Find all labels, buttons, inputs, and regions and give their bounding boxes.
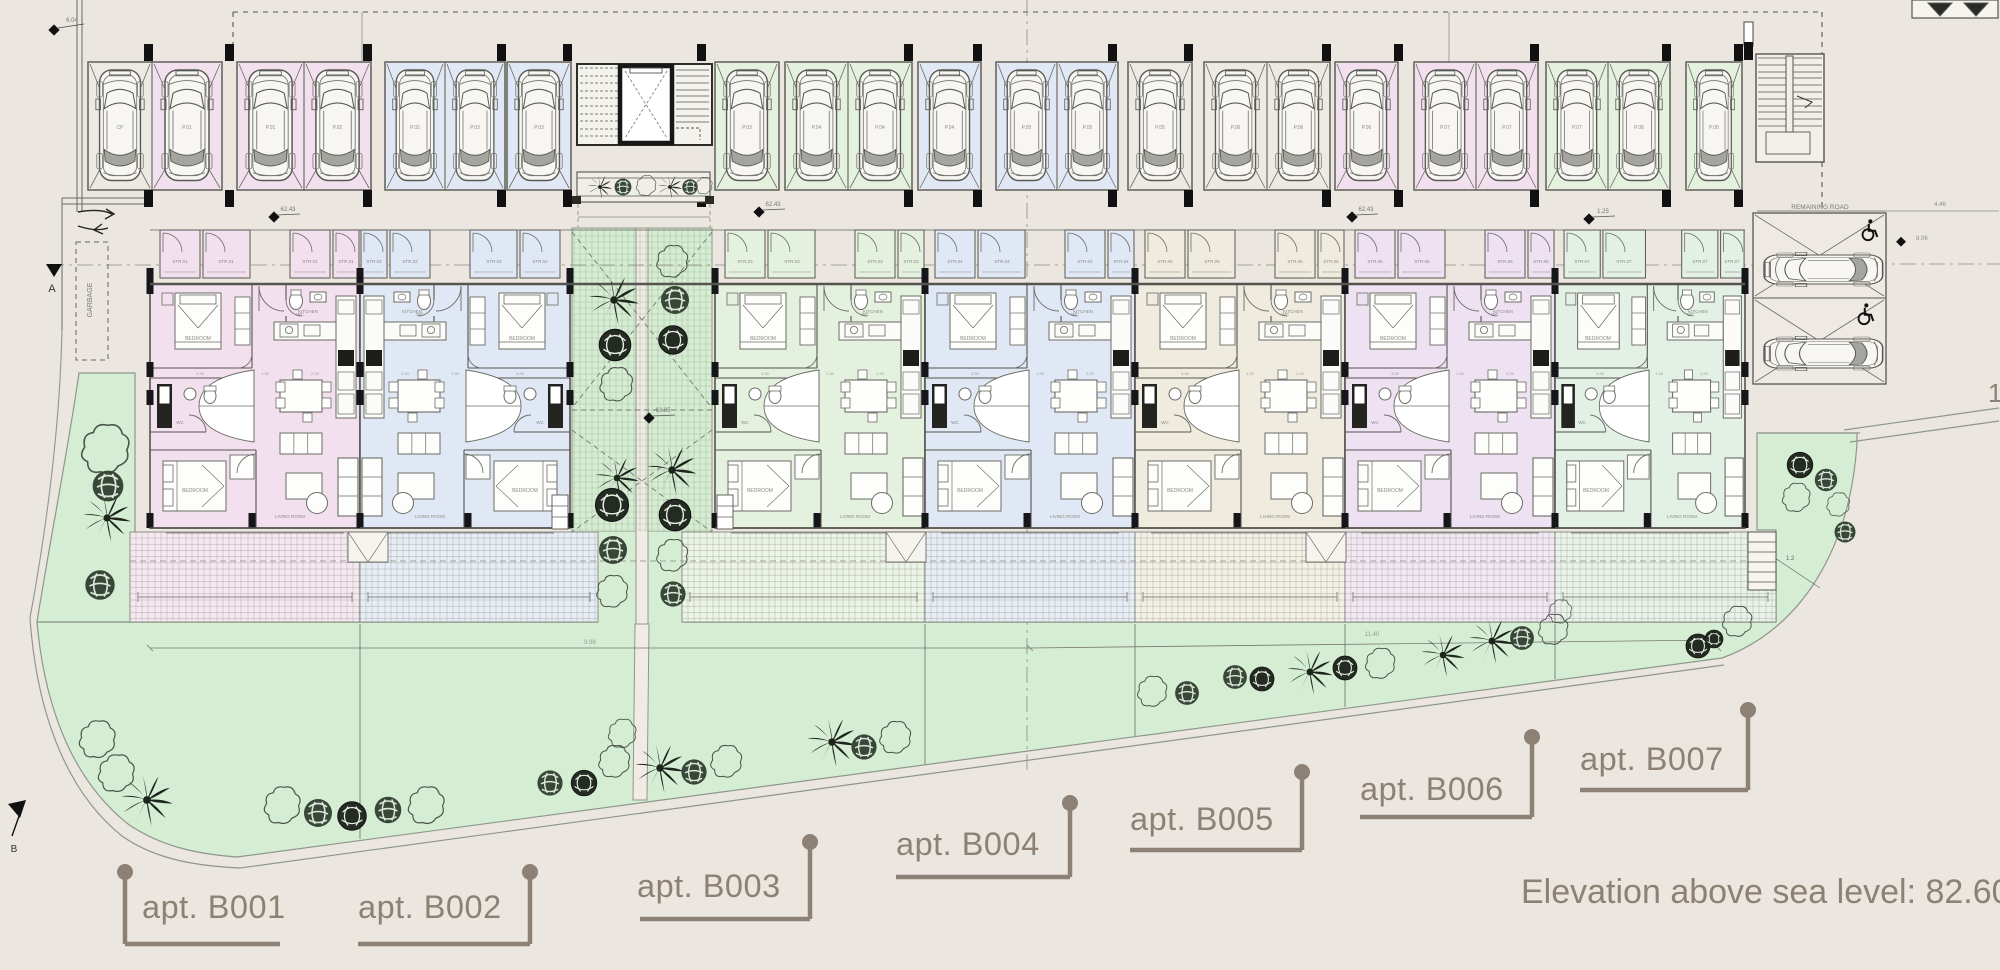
svg-text:KITCHEN: KITCHEN <box>1493 309 1513 314</box>
svg-text:KITCHEN: KITCHEN <box>1283 309 1303 314</box>
svg-text:LIVING ROOM: LIVING ROOM <box>840 514 870 519</box>
svg-text:P.06: P.06 <box>1231 125 1241 131</box>
svg-text:P.07: P.07 <box>1502 125 1512 131</box>
svg-text:STR.02: STR.02 <box>486 259 502 264</box>
svg-text:1.30: 1.30 <box>1655 371 1664 376</box>
svg-text:STR.05: STR.05 <box>1204 259 1220 264</box>
svg-text:STR.07: STR.07 <box>1616 259 1632 264</box>
svg-text:apt. B004: apt. B004 <box>896 826 1040 862</box>
svg-text:2.20: 2.20 <box>1086 371 1095 376</box>
svg-text:P.08: P.08 <box>1709 125 1719 131</box>
svg-text:WC: WC <box>1161 420 1169 425</box>
svg-text:STR.01: STR.01 <box>172 259 188 264</box>
svg-text:1.30: 1.30 <box>451 371 460 376</box>
svg-text:KITCHEN: KITCHEN <box>1688 309 1708 314</box>
svg-text:BEDROOM: BEDROOM <box>957 488 983 494</box>
svg-text:STR.04: STR.04 <box>1077 259 1093 264</box>
svg-text:STR.05: STR.05 <box>1323 259 1339 264</box>
svg-text:STR.06: STR.06 <box>1367 259 1383 264</box>
svg-text:P.07: P.07 <box>1440 125 1450 131</box>
svg-text:STR.03: STR.03 <box>867 259 883 264</box>
svg-text:1.30: 1.30 <box>261 371 270 376</box>
svg-text:BEDROOM: BEDROOM <box>512 488 538 494</box>
svg-text:REMAINING ROAD: REMAINING ROAD <box>1791 204 1849 211</box>
svg-text:STR.03: STR.03 <box>737 259 753 264</box>
svg-text:WC: WC <box>951 420 959 425</box>
svg-text:2.20: 2.20 <box>1506 371 1515 376</box>
svg-text:3.30: 3.30 <box>196 371 205 376</box>
svg-text:STR.07: STR.07 <box>1692 259 1708 264</box>
svg-text:LIVING ROOM: LIVING ROOM <box>1470 514 1500 519</box>
svg-text:WC: WC <box>176 420 184 425</box>
svg-text:62.43: 62.43 <box>765 202 781 208</box>
svg-text:P.05: P.05 <box>1022 125 1032 131</box>
svg-text:WC: WC <box>1371 420 1379 425</box>
svg-text:2.20: 2.20 <box>1700 371 1709 376</box>
svg-text:1.30: 1.30 <box>1456 371 1465 376</box>
svg-text:LIVING ROOM: LIVING ROOM <box>1260 514 1290 519</box>
svg-text:P.03: P.03 <box>470 125 480 131</box>
svg-text:2.20: 2.20 <box>1296 371 1305 376</box>
svg-text:P.05: P.05 <box>1083 125 1093 131</box>
svg-text:STR.05: STR.05 <box>1287 259 1303 264</box>
svg-text:Elevation above sea level: 82.: Elevation above sea level: 82.60 <box>1521 873 2000 911</box>
svg-text:P.02: P.02 <box>410 125 420 131</box>
svg-text:1.2: 1.2 <box>1786 556 1795 562</box>
svg-text:KITCHEN: KITCHEN <box>863 309 883 314</box>
svg-text:BEDROOM: BEDROOM <box>1167 488 1193 494</box>
svg-text:9.98: 9.98 <box>584 640 596 646</box>
svg-text:BEDROOM: BEDROOM <box>750 336 776 342</box>
svg-text:STR.02: STR.02 <box>402 259 418 264</box>
svg-text:KITCHEN: KITCHEN <box>298 309 318 314</box>
svg-text:KITCHEN: KITCHEN <box>402 309 422 314</box>
svg-text:P.04: P.04 <box>812 125 822 131</box>
svg-text:STR.04: STR.04 <box>994 259 1010 264</box>
svg-text:P.07: P.07 <box>1572 125 1582 131</box>
svg-text:STR.06: STR.06 <box>1414 259 1430 264</box>
svg-text:apt. B003: apt. B003 <box>637 868 781 904</box>
svg-text:1.25: 1.25 <box>1597 209 1609 215</box>
svg-text:LIVING ROOM: LIVING ROOM <box>275 514 305 519</box>
svg-text:P.04: P.04 <box>875 125 885 131</box>
svg-text:STR.02: STR.02 <box>366 259 382 264</box>
svg-text:3.30: 3.30 <box>761 371 770 376</box>
svg-text:P.04: P.04 <box>945 125 955 131</box>
svg-text:P.02: P.02 <box>333 125 343 131</box>
svg-text:1.30: 1.30 <box>1036 371 1045 376</box>
svg-text:WC: WC <box>741 420 749 425</box>
svg-text:BEDROOM: BEDROOM <box>747 488 773 494</box>
svg-text:STR.01: STR.01 <box>302 259 318 264</box>
svg-text:STR.04: STR.04 <box>1113 259 1129 264</box>
svg-text:STR.05: STR.05 <box>1157 259 1173 264</box>
svg-text:apt. B005: apt. B005 <box>1130 801 1274 837</box>
svg-text:2.20: 2.20 <box>876 371 885 376</box>
svg-text:2.20: 2.20 <box>401 371 410 376</box>
svg-text:CP: CP <box>117 125 125 131</box>
svg-text:STR.07: STR.07 <box>1574 259 1590 264</box>
svg-text:P.03: P.03 <box>534 125 544 131</box>
svg-text:LIVING ROOM: LIVING ROOM <box>415 514 445 519</box>
svg-text:3.30: 3.30 <box>971 371 980 376</box>
svg-text:62.43: 62.43 <box>1358 207 1374 213</box>
svg-text:WC: WC <box>1578 420 1586 425</box>
svg-text:STR.04: STR.04 <box>947 259 963 264</box>
svg-text:3.30: 3.30 <box>1391 371 1400 376</box>
svg-text:P.03: P.03 <box>742 125 752 131</box>
svg-text:3.30: 3.30 <box>516 371 525 376</box>
svg-text:63.05: 63.05 <box>655 408 671 414</box>
svg-text:STR.03: STR.03 <box>784 259 800 264</box>
svg-text:LIVING ROOM: LIVING ROOM <box>1667 514 1697 519</box>
svg-text:BEDROOM: BEDROOM <box>182 488 208 494</box>
svg-text:P.05: P.05 <box>1155 125 1165 131</box>
svg-text:STR.06: STR.06 <box>1497 259 1513 264</box>
svg-text:BEDROOM: BEDROOM <box>185 336 211 342</box>
svg-text:apt. B006: apt. B006 <box>1360 771 1504 807</box>
svg-text:4.46: 4.46 <box>1934 202 1946 208</box>
svg-text:KITCHEN: KITCHEN <box>1073 309 1093 314</box>
svg-text:A: A <box>48 283 56 295</box>
svg-text:apt. B002: apt. B002 <box>358 889 502 925</box>
svg-text:P.06: P.06 <box>1362 125 1372 131</box>
svg-text:11.40: 11.40 <box>1365 632 1380 638</box>
svg-text:8.06: 8.06 <box>1916 236 1928 242</box>
svg-text:BEDROOM: BEDROOM <box>509 336 535 342</box>
svg-text:1.30: 1.30 <box>826 371 835 376</box>
svg-text:P.01: P.01 <box>182 125 192 131</box>
svg-text:P.06: P.06 <box>1294 125 1304 131</box>
svg-text:BEDROOM: BEDROOM <box>1377 488 1403 494</box>
svg-text:1: 1 <box>1988 378 2000 408</box>
svg-text:BEDROOM: BEDROOM <box>1583 488 1609 494</box>
svg-text:apt. B007: apt. B007 <box>1580 741 1724 777</box>
svg-text:STR.03: STR.03 <box>903 259 919 264</box>
svg-text:WC: WC <box>536 420 544 425</box>
svg-text:62.43: 62.43 <box>280 207 296 213</box>
svg-text:2.20: 2.20 <box>311 371 320 376</box>
svg-text:P.01: P.01 <box>266 125 276 131</box>
svg-text:3.30: 3.30 <box>1596 371 1605 376</box>
svg-text:LIVING ROOM: LIVING ROOM <box>1050 514 1080 519</box>
svg-text:STR.02: STR.02 <box>532 259 548 264</box>
svg-text:STR.06: STR.06 <box>1533 259 1549 264</box>
svg-text:STR.07: STR.07 <box>1724 259 1740 264</box>
svg-text:GARBAGE: GARBAGE <box>87 282 94 317</box>
svg-text:STR.01: STR.01 <box>338 259 354 264</box>
svg-text:6.04: 6.04 <box>66 18 78 24</box>
svg-text:BEDROOM: BEDROOM <box>1170 336 1196 342</box>
svg-text:BEDROOM: BEDROOM <box>960 336 986 342</box>
svg-text:3.30: 3.30 <box>1181 371 1190 376</box>
svg-text:P.08: P.08 <box>1634 125 1644 131</box>
svg-text:STR.01: STR.01 <box>218 259 234 264</box>
svg-text:1.30: 1.30 <box>1246 371 1255 376</box>
svg-text:BEDROOM: BEDROOM <box>1585 336 1611 342</box>
svg-text:B: B <box>11 844 18 855</box>
svg-text:BEDROOM: BEDROOM <box>1380 336 1406 342</box>
svg-text:apt. B001: apt. B001 <box>142 889 286 925</box>
